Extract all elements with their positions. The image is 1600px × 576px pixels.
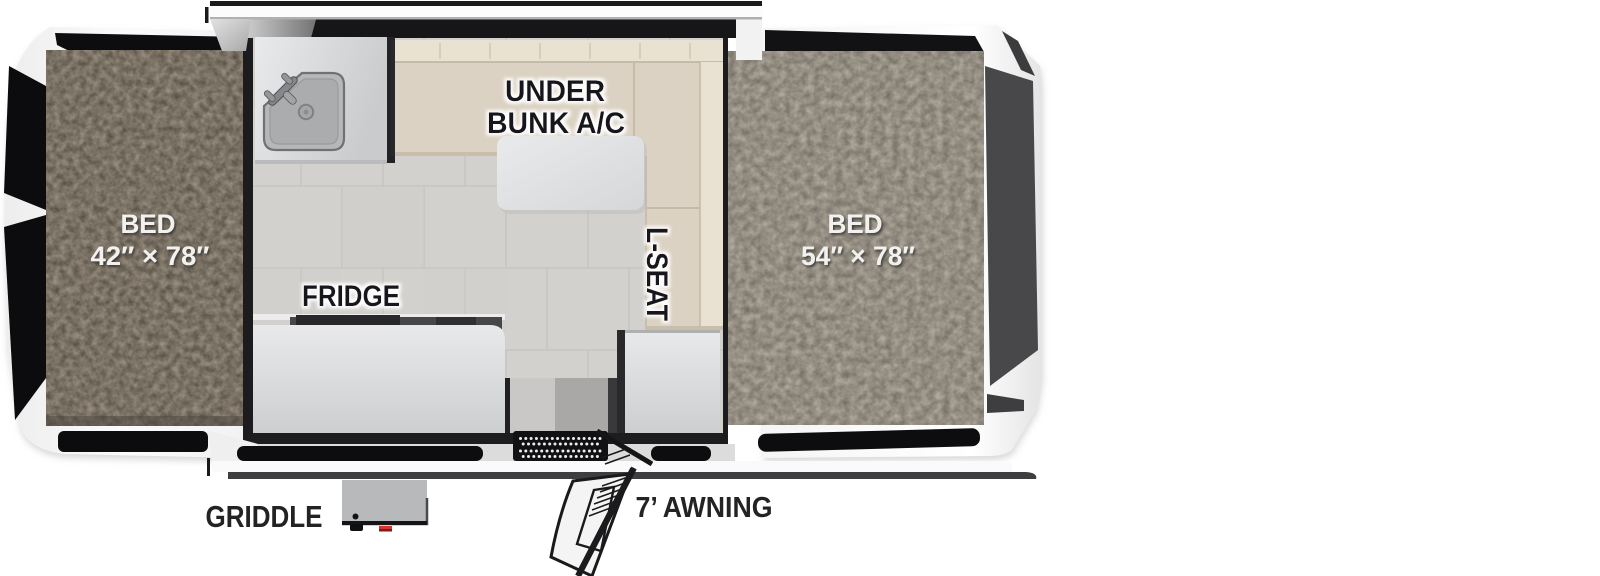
svg-text:BUNK A/C: BUNK A/C [487, 107, 625, 140]
svg-text:L-SEAT: L-SEAT [640, 227, 673, 321]
svg-text:BED: BED [828, 209, 883, 239]
svg-text:FRIDGE: FRIDGE [302, 280, 400, 313]
svg-text:UNDER: UNDER [505, 75, 605, 108]
svg-text:GRIDDLE: GRIDDLE [206, 499, 323, 534]
svg-text:7’ AWNING: 7’ AWNING [636, 492, 773, 524]
svg-text:42″ × 78″: 42″ × 78″ [91, 241, 210, 271]
svg-text:54″ × 78″: 54″ × 78″ [801, 241, 915, 271]
svg-text:BED: BED [121, 209, 176, 239]
